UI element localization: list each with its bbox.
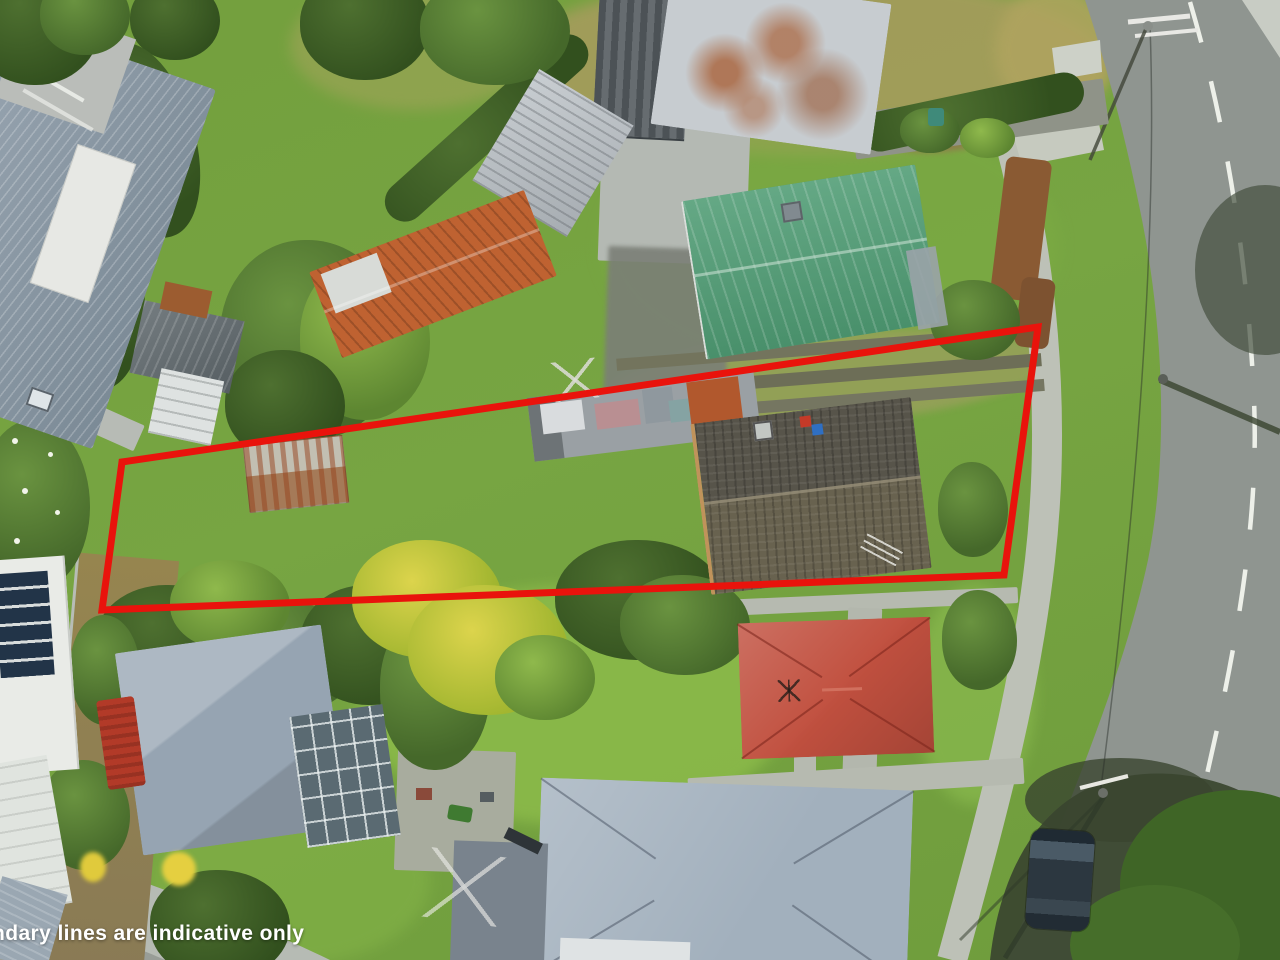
boundary-layer xyxy=(0,0,1280,960)
disclaimer-text: Boundary lines are indicative only xyxy=(0,922,304,946)
boundary-outline xyxy=(102,327,1038,610)
aerial-photo: Boundary lines are indicative only xyxy=(0,0,1280,960)
